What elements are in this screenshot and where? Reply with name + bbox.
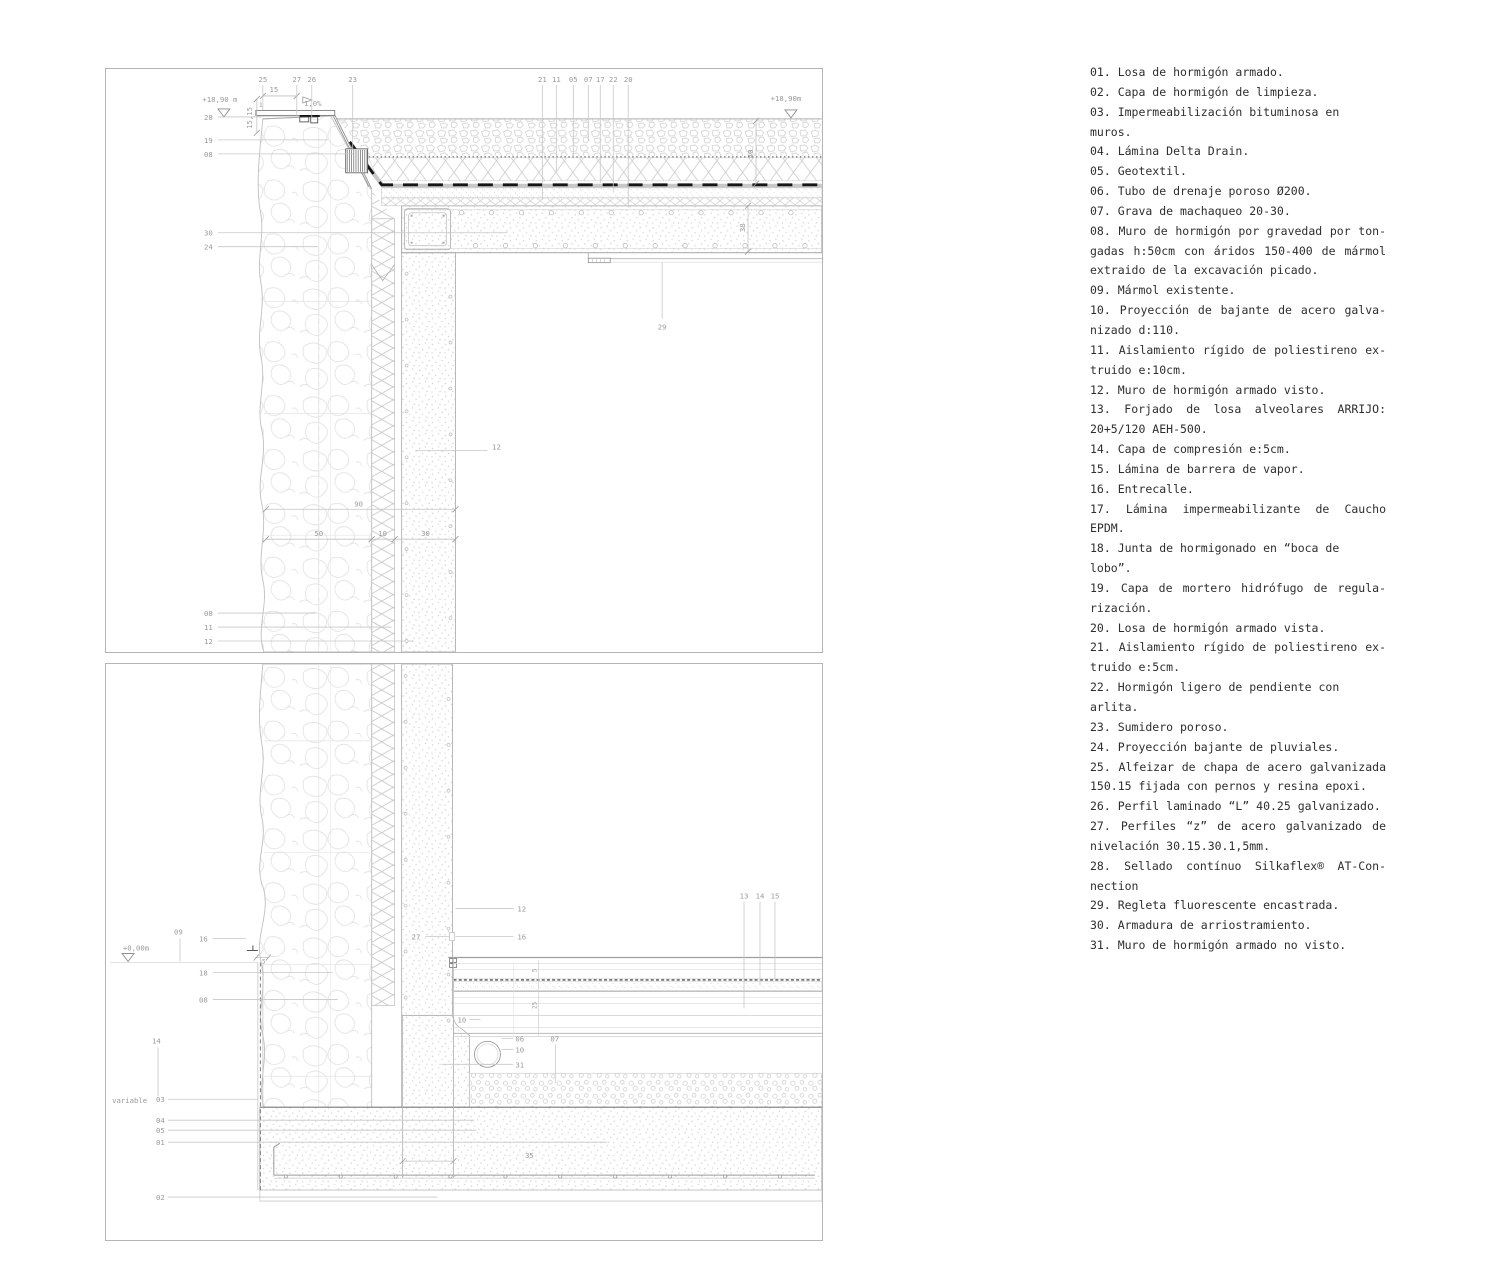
drawing-label: 15 [771, 892, 780, 901]
rebar-dot [404, 720, 407, 723]
drawing-label: 11 [552, 75, 561, 84]
rebar-dot [449, 571, 452, 574]
slope-screed [382, 188, 822, 198]
legend-item-line: 04. Lámina Delta Drain. [1090, 142, 1386, 162]
drawing-label: 29 [658, 323, 667, 332]
drawing-label: 38 [738, 223, 747, 232]
xps-insulation-band [372, 191, 395, 652]
drawing-label: 31 [515, 1060, 524, 1069]
drawing-label: 35 [525, 1151, 534, 1160]
rebar-dot [449, 387, 452, 390]
legend-item-line: 01. Losa de hormigón armado. [1090, 63, 1386, 83]
drawing-label: 04 [156, 1116, 165, 1125]
drawing-label: 25 [531, 1001, 538, 1009]
drawing-label: 08 [199, 995, 208, 1004]
rebar-dot [447, 881, 450, 884]
rebar-dot [447, 835, 450, 838]
drawing-label: 15,15 [245, 107, 254, 129]
legend-item-line: 03. Impermeabilización bituminosa en mur… [1090, 103, 1386, 143]
rebar-dot [533, 244, 537, 248]
drawing-label: 50 [314, 529, 323, 538]
rebar-dot [778, 1175, 781, 1178]
legend-item-line: rización. [1090, 599, 1386, 619]
fluorescent-strip [588, 258, 610, 262]
exterior-entrecalle-angle [247, 946, 258, 951]
drawing-label: 02 [156, 1193, 165, 1202]
rebar-dot [404, 996, 407, 999]
rebar-dot [669, 211, 673, 215]
rebar-dot [519, 211, 523, 215]
rebar-dot [339, 1175, 342, 1178]
legend-item-line: 13. Forjado de losa alveolares ARRIJO: [1090, 400, 1386, 420]
rebar-dot [683, 244, 687, 248]
rebar-dot [699, 211, 703, 215]
rebar-dot [404, 766, 407, 769]
drawing-label: 22 [609, 75, 618, 84]
concrete-wall [402, 664, 470, 1107]
rebar-dot [449, 1175, 452, 1178]
rebar-dot [723, 1175, 726, 1178]
drawing-label: 09 [174, 928, 183, 937]
rebar-dot [405, 364, 408, 367]
elevation-marker-left [218, 109, 230, 117]
legend-item-line: 28. Sellado contínuo Silkaflex® AT-Con- [1090, 857, 1386, 877]
legend-item-line: 11. Aislamiento rígido de poliestireno e… [1090, 341, 1386, 361]
drawing-label: 10 [378, 529, 387, 538]
rebar-dot [713, 244, 717, 248]
drawing-label: 17 [596, 75, 605, 84]
legend-item-line: 14. Capa de compresión e:5cm. [1090, 440, 1386, 460]
drawing-label: 12 [517, 905, 526, 914]
drawing-label: 08 [204, 150, 213, 159]
drawing-label: 5 [531, 968, 538, 972]
rebar-dot [743, 244, 747, 248]
drawing-label: 05 [156, 1126, 165, 1135]
rebar-dot [404, 904, 407, 907]
legend-item-line: 09. Mármol existente. [1090, 281, 1386, 301]
sheet: { "legend": { "items": [ {"lines":["01. … [0, 0, 1500, 1286]
legend-item-line: 23. Sumidero poroso. [1090, 718, 1386, 738]
legend-item-line: 18. Junta de hormigonado en “boca de lob… [1090, 539, 1386, 579]
detail-frame-roof: +18,90 m+18,90m2819083024081112252726232… [105, 68, 823, 653]
drawing-label: 03 [156, 1095, 165, 1104]
marble-gravity-wall [259, 664, 371, 1107]
rebar-dot [563, 244, 567, 248]
rebar-dot [729, 211, 733, 215]
roof-parapet-drawing: +18,90 m+18,90m2819083024081112252726232… [106, 69, 822, 652]
detail-frame-foundation: +0,00m0916180814variable0304050102121627… [105, 663, 823, 1241]
rebar-dot [639, 211, 643, 215]
legend-item-line: EPDM. [1090, 519, 1386, 539]
drawing-label: +18,90m [771, 94, 802, 103]
rebar-dot [653, 244, 657, 248]
rebar-dot [579, 211, 583, 215]
drawing-label: 25 [258, 75, 267, 84]
drawing-label: 30 [204, 229, 213, 238]
rebar-dot [614, 1175, 617, 1178]
rebar-dot [405, 318, 408, 321]
drawing-label: 27 [412, 933, 421, 942]
entrecalle-groove [450, 933, 455, 941]
legend-item-line: 31. Muro de hormigón armado no visto. [1090, 936, 1386, 956]
drawing-label: 1,0% [304, 99, 322, 108]
rebar-dot [803, 244, 807, 248]
rebar-dot [773, 244, 777, 248]
legend-item-line: 07. Grava de machaqueo 20-30. [1090, 202, 1386, 222]
rebar-dot [404, 812, 407, 815]
rebar-dot [405, 548, 408, 551]
legend-item-line: gadas h:50cm con áridos 150-400 de mármo… [1090, 242, 1386, 262]
drawing-label: +18,90 m [202, 95, 238, 104]
legend-item-line: 05. Geotextil. [1090, 162, 1386, 182]
rebar-dot [284, 1175, 287, 1178]
legend-item-line: 08. Muro de hormigón por gravedad por to… [1090, 222, 1386, 242]
rebar-dot [489, 211, 493, 215]
lean-concrete [260, 1190, 822, 1201]
legend-item-line: extraido de la excavación picado. [1090, 261, 1386, 281]
marble-gravity-wall [258, 116, 371, 652]
drawing-label: 14 [756, 892, 765, 901]
xps-insulation-band [372, 664, 395, 1005]
rebar-dot [449, 341, 452, 344]
legend-item-line: 16. Entrecalle. [1090, 480, 1386, 500]
legend-item-line: nivelación 30.15.30.1,5mm. [1090, 837, 1386, 857]
drawing-label: 1 [259, 102, 263, 109]
concrete-wall-hidden [402, 1015, 470, 1107]
wall-base-drawing: +0,00m0916180814variable0304050102121627… [106, 664, 822, 1240]
rebar-dot [404, 674, 407, 677]
rebar-dot [609, 211, 613, 215]
rebar-dot [449, 433, 452, 436]
legend-item-line: 02. Capa de hormigón de limpieza. [1090, 83, 1386, 103]
drawing-label: +0,00m [123, 944, 150, 953]
rebar-dot [405, 502, 408, 505]
legend-list: 01. Losa de hormigón armado.02. Capa de … [1090, 63, 1386, 956]
elevation-marker [122, 953, 134, 961]
rebar-dot [394, 1175, 397, 1178]
legend-item-line: 22. Hormigón ligero de pendiente con arl… [1090, 678, 1386, 718]
legend-item-line: nizado d:110. [1090, 321, 1386, 341]
rebar-dot [593, 244, 597, 248]
floor-build-up [449, 957, 822, 1036]
drawing-label: 08 [204, 609, 213, 618]
rebar-dot [405, 272, 408, 275]
legend-item-line: nection [1090, 877, 1386, 897]
porous-drain [346, 149, 368, 173]
legend-item-line: truido e:5cm. [1090, 658, 1386, 678]
drawing-label: 19 [204, 136, 213, 145]
drawing-label: 10 [515, 1045, 524, 1054]
rebar-dot [405, 594, 408, 597]
rebar-dot [447, 973, 450, 976]
gravel-bed [469, 1073, 821, 1107]
rebar-dot [549, 211, 553, 215]
drawing-label: 24 [204, 243, 213, 252]
rebar-dot [623, 244, 627, 248]
legend-item-line: 06. Tubo de drenaje poroso Ø200. [1090, 182, 1386, 202]
rebar-dot [405, 456, 408, 459]
rebar-dot [473, 244, 477, 248]
rebar-dot [447, 743, 450, 746]
legend-item-line: 21. Aislamiento rígido de poliestireno e… [1090, 638, 1386, 658]
drain-pipe [474, 1041, 500, 1067]
legend-item-line: truido e:10cm. [1090, 361, 1386, 381]
drawing-label: variable [112, 1096, 147, 1105]
rebar-dot [447, 927, 450, 930]
legend-item-line: 20. Losa de hormigón armado vista. [1090, 619, 1386, 639]
drawing-label: 13 [740, 892, 749, 901]
steel-sill [256, 110, 335, 116]
rebar-dot [759, 211, 763, 215]
concrete-wall-visible [402, 253, 456, 652]
rebar-dot [404, 950, 407, 953]
drawing-label: 20 [624, 75, 633, 84]
drawing-label: 10 [458, 1015, 467, 1024]
rebar-dot [447, 789, 450, 792]
drawing-label: 11 [204, 623, 213, 632]
drawing-label: 21 [538, 75, 547, 84]
legend-item-line: 25. Alfeizar de chapa de acero galvaniza… [1090, 758, 1386, 778]
rebar-dot [449, 525, 452, 528]
drawing-label: 28 [204, 113, 213, 122]
legend-item-line: 150.15 fijada con pernos y resina epoxi. [1090, 777, 1386, 797]
rebar-dot [504, 1175, 507, 1178]
drawing-label: 05 [569, 75, 578, 84]
drawing-label: 18 [199, 968, 208, 977]
drawing-label: 15 [269, 85, 278, 94]
drawing-label: 16 [517, 933, 526, 942]
drawing-label: 07 [550, 1034, 559, 1043]
rebar-dot [449, 617, 452, 620]
rebar-dot [405, 640, 408, 643]
drawing-label: 26 [307, 75, 316, 84]
rebar-dot [503, 244, 507, 248]
legend-item-line: 24. Proyección bajante de pluviales. [1090, 738, 1386, 758]
drawing-label: 12 [492, 442, 501, 451]
legend-item-line: 27. Perfiles “z” de acero galvanizado de [1090, 817, 1386, 837]
legend-item-line: 20+5/120 AEH-500. [1090, 420, 1386, 440]
legend-item-line: 19. Capa de mortero hidrófugo de regula- [1090, 579, 1386, 599]
elevation-marker-right [785, 110, 797, 118]
drawing-label: 40 [746, 149, 755, 158]
rebar-dot [405, 410, 408, 413]
xps-roof-insulation [369, 158, 822, 181]
drawing-label: 5 [262, 958, 266, 965]
drawing-label: 30 [421, 529, 430, 538]
drawing-label: 01 [156, 1138, 165, 1147]
xps-thin-layer [382, 198, 822, 206]
hollow-core-slab-lines [454, 991, 822, 1036]
drawing-label: 06 [515, 1034, 524, 1043]
rebar-dot [789, 211, 793, 215]
drawing-label: 07 [584, 75, 593, 84]
legend-item-line: 30. Armadura de arriostramiento. [1090, 916, 1386, 936]
legend-item-line: 15. Lámina de barrera de vapor. [1090, 460, 1386, 480]
rebar-dot [449, 479, 452, 482]
roof-slab [402, 206, 822, 253]
drawing-label: 14 [152, 1036, 161, 1045]
drawing-label: 23 [348, 75, 357, 84]
ceiling-recess [588, 253, 822, 263]
rebar-dot [404, 858, 407, 861]
drawing-label: 16 [199, 935, 208, 944]
legend-item-line: 17. Lámina impermeabilizante de Caucho [1090, 500, 1386, 520]
legend-item-line: 10. Proyección de bajante de acero galva… [1090, 301, 1386, 321]
drawing-label: 90 [354, 499, 363, 508]
rebar-dot [447, 1019, 450, 1022]
drawing-label: 12 [204, 637, 213, 646]
rebar-dot [447, 697, 450, 700]
rebar-dot [559, 1175, 562, 1178]
legend-item-line: 29. Regleta fluorescente encastrada. [1090, 896, 1386, 916]
legend-item-line: 26. Perfil laminado “L” 40.25 galvanizad… [1090, 797, 1386, 817]
rebar-dot [449, 295, 452, 298]
rebar-dot [459, 211, 463, 215]
legend-item-line: 12. Muro de hormigón armado visto. [1090, 381, 1386, 401]
drawing-label: 27 [292, 75, 301, 84]
rebar-dot [669, 1175, 672, 1178]
